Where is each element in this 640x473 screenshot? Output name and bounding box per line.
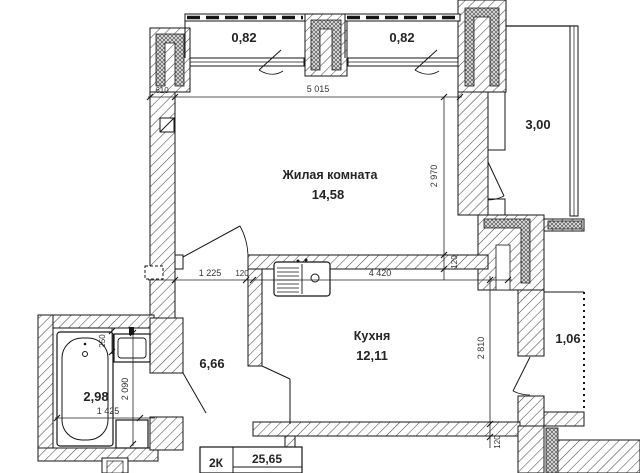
wall-below-side-balcony <box>544 412 584 426</box>
doorway-kitchen-splay <box>262 366 290 379</box>
living-room-label: Жилая комната <box>281 168 378 182</box>
balcony-right-area: 0,82 <box>389 30 414 45</box>
door-bathroom-leaf <box>183 373 206 413</box>
dim-living-depth: 2 970 <box>429 165 439 188</box>
door-jamb-living <box>175 255 183 269</box>
kitchen-sink <box>274 259 330 297</box>
loggia-partition-upper <box>488 92 505 150</box>
wall-bottom-right-block <box>556 440 640 473</box>
washing-machine <box>116 420 148 448</box>
insulation-bottom-right <box>546 428 558 473</box>
door-balcony-right-swing <box>415 70 439 74</box>
dim-wall-living-120: 120 <box>450 255 459 269</box>
floor-plan: 610 5 015 2 970 120 1 225 120 4 420 2 81… <box>0 0 640 473</box>
hall-area: 6,66 <box>199 356 224 371</box>
title-stamp: 2К 25,65 <box>200 447 302 473</box>
dim-wall-hall-120: 120 <box>235 269 249 278</box>
electrical-panel-icon <box>160 118 174 132</box>
wall-bathroom-left <box>38 315 53 461</box>
dim-bathroom-width: 1 425 <box>97 406 120 416</box>
dim-wall-kitchen-120: 120 <box>493 435 502 449</box>
wall-bottom-right-column <box>518 426 544 473</box>
kitchen-area: 12,11 <box>356 348 388 363</box>
dim-bathroom-depth: 2 090 <box>120 378 130 401</box>
door-balcony-left-swing <box>259 70 283 74</box>
stamp-apartment-type: 2К <box>209 456 224 470</box>
balcony-left-area: 0,82 <box>231 30 256 45</box>
loggia-partition-lower <box>488 199 505 215</box>
insulation-loggia-band <box>548 221 582 229</box>
bathroom-pedestal <box>102 458 128 473</box>
door-living-leaf <box>183 226 240 257</box>
bathroom-area: 2,98 <box>83 389 108 404</box>
bathroom-sink <box>114 327 150 362</box>
stamp-total-area: 25,65 <box>252 452 282 466</box>
floor-plan-drawing: 610 5 015 2 970 120 1 225 120 4 420 2 81… <box>0 0 640 473</box>
wall-kitchen-balcony-upper <box>518 290 544 356</box>
wall-right-living <box>458 92 488 215</box>
loggia-area: 3,00 <box>525 117 550 132</box>
dim-offset-250: 250 <box>98 334 107 348</box>
wall-bathroom-bottom <box>38 448 158 461</box>
wall-hall-kitchen <box>248 269 262 366</box>
side-balcony-area: 1,06 <box>555 331 580 346</box>
wall-kitchen-bottom <box>253 422 520 436</box>
wall-bathroom-right-block <box>150 318 183 373</box>
living-room-area: 14,58 <box>312 187 345 202</box>
dim-living-width: 5 015 <box>307 84 330 94</box>
kitchen-label: Кухня <box>354 329 391 343</box>
door-loggia-leaf <box>488 162 504 196</box>
door-living-swing <box>240 226 248 257</box>
dim-offset-610: 610 <box>155 86 169 95</box>
dim-kitchen-width: 4 420 <box>369 268 392 278</box>
wall-box-icon <box>145 266 163 279</box>
wall-kitchen-balcony-lower <box>518 396 544 426</box>
dim-kitchen-depth: 2 810 <box>476 337 486 360</box>
door-side-balcony-swing <box>513 391 530 395</box>
wall-bathroom-top <box>38 315 154 328</box>
dim-hall-width: 1 225 <box>199 268 222 278</box>
wall-hall-left-block <box>150 417 183 450</box>
wall-niche <box>496 245 510 290</box>
walls-hatched <box>38 0 640 473</box>
door-side-balcony-leaf <box>513 357 530 391</box>
